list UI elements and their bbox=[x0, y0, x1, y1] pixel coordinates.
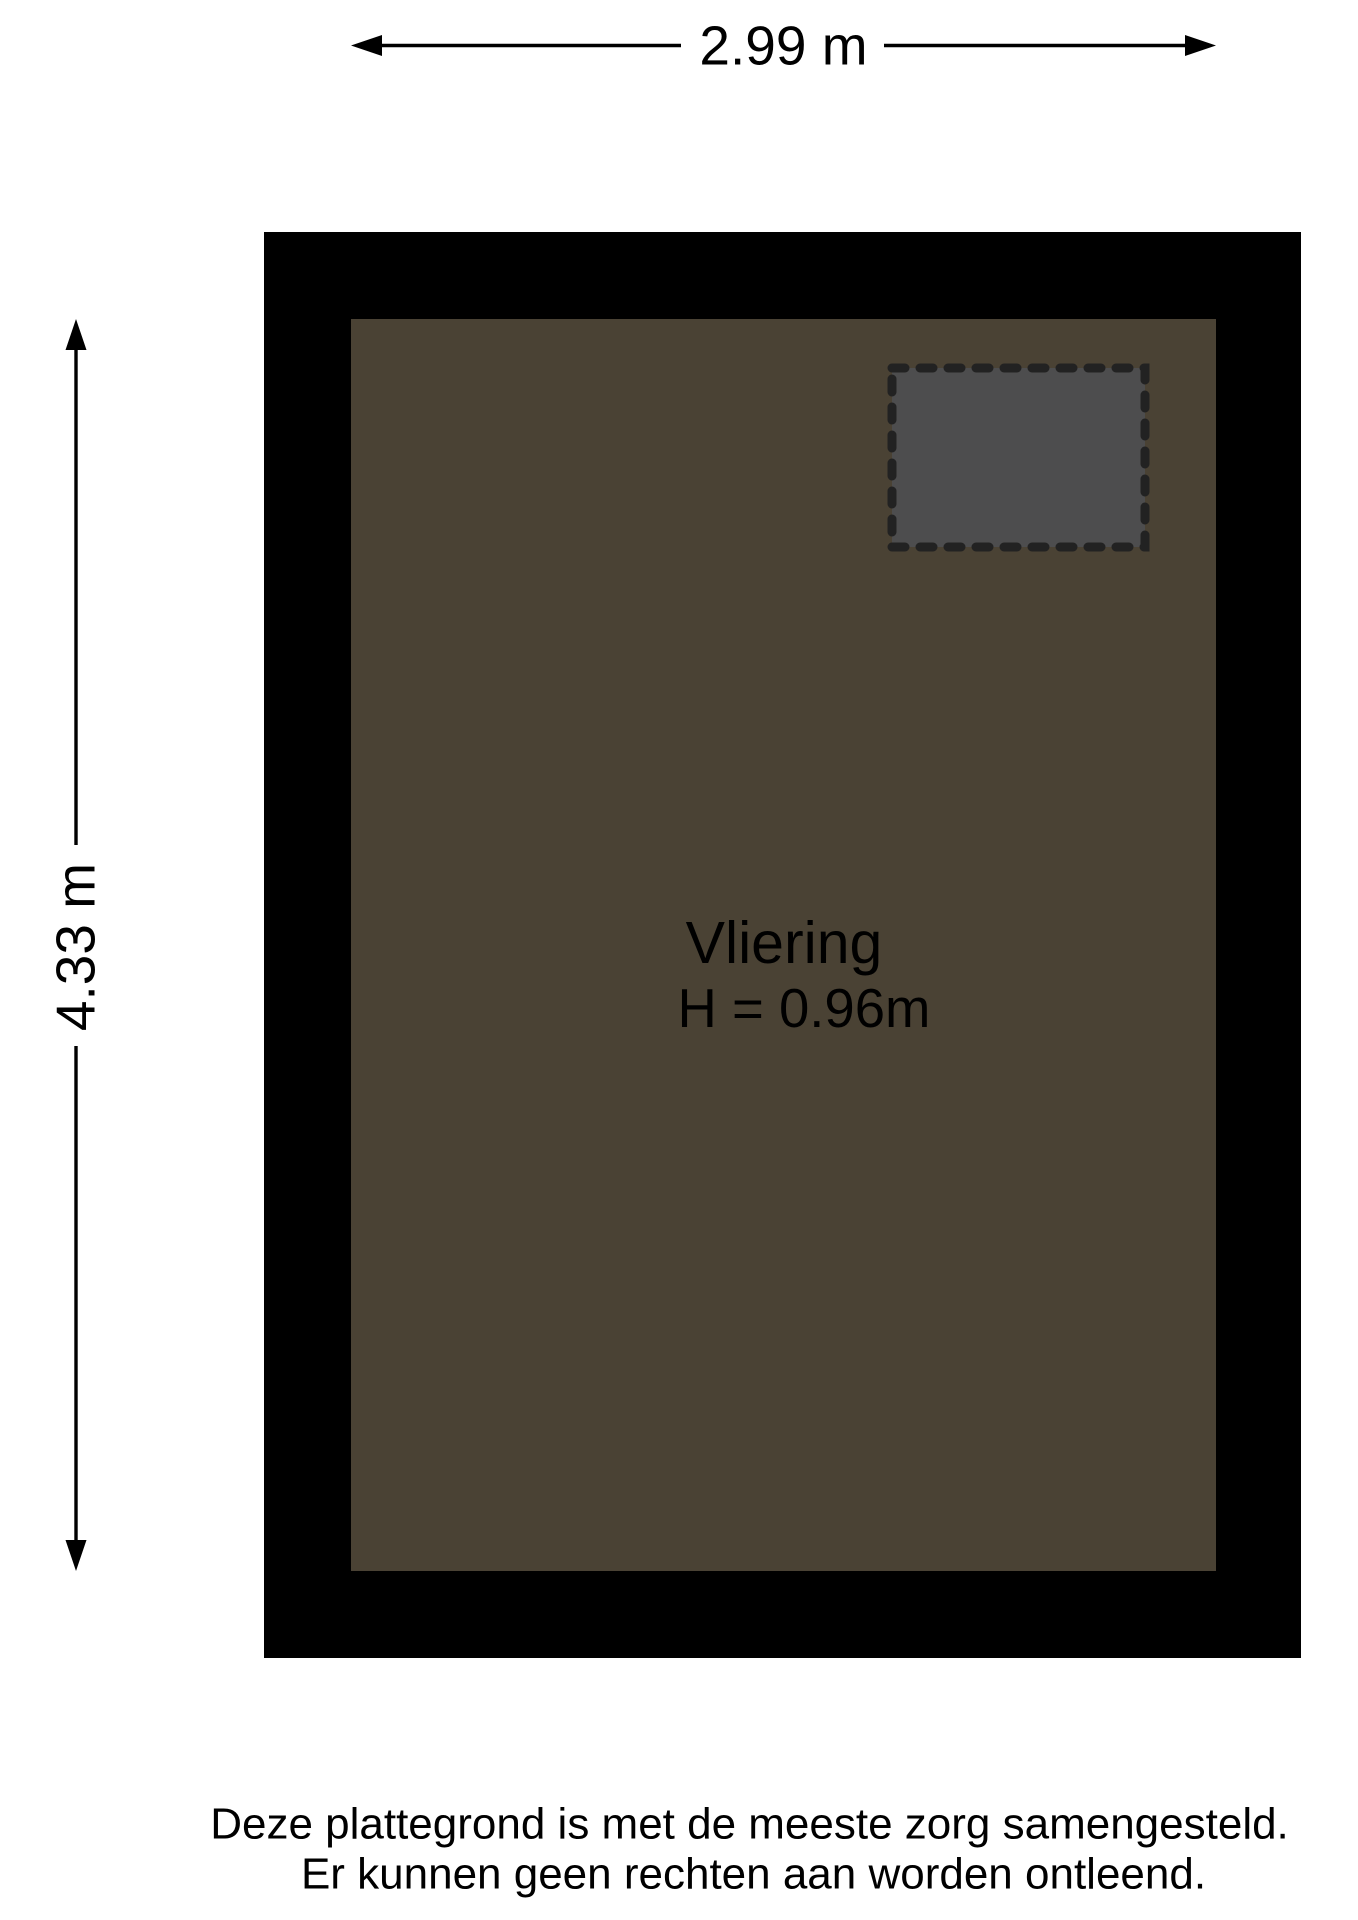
svg-text:Er kunnen geen rechten aan wor: Er kunnen geen rechten aan worden ontlee… bbox=[301, 1850, 1206, 1899]
svg-text:Deze plattegrond is met de mee: Deze plattegrond is met de meeste zorg s… bbox=[210, 1800, 1289, 1849]
svg-text:2.99 m: 2.99 m bbox=[699, 15, 867, 77]
svg-text:H = 0.96m: H = 0.96m bbox=[678, 978, 931, 1039]
svg-text:Vliering: Vliering bbox=[686, 910, 883, 976]
svg-text:4.33 m: 4.33 m bbox=[45, 863, 107, 1031]
